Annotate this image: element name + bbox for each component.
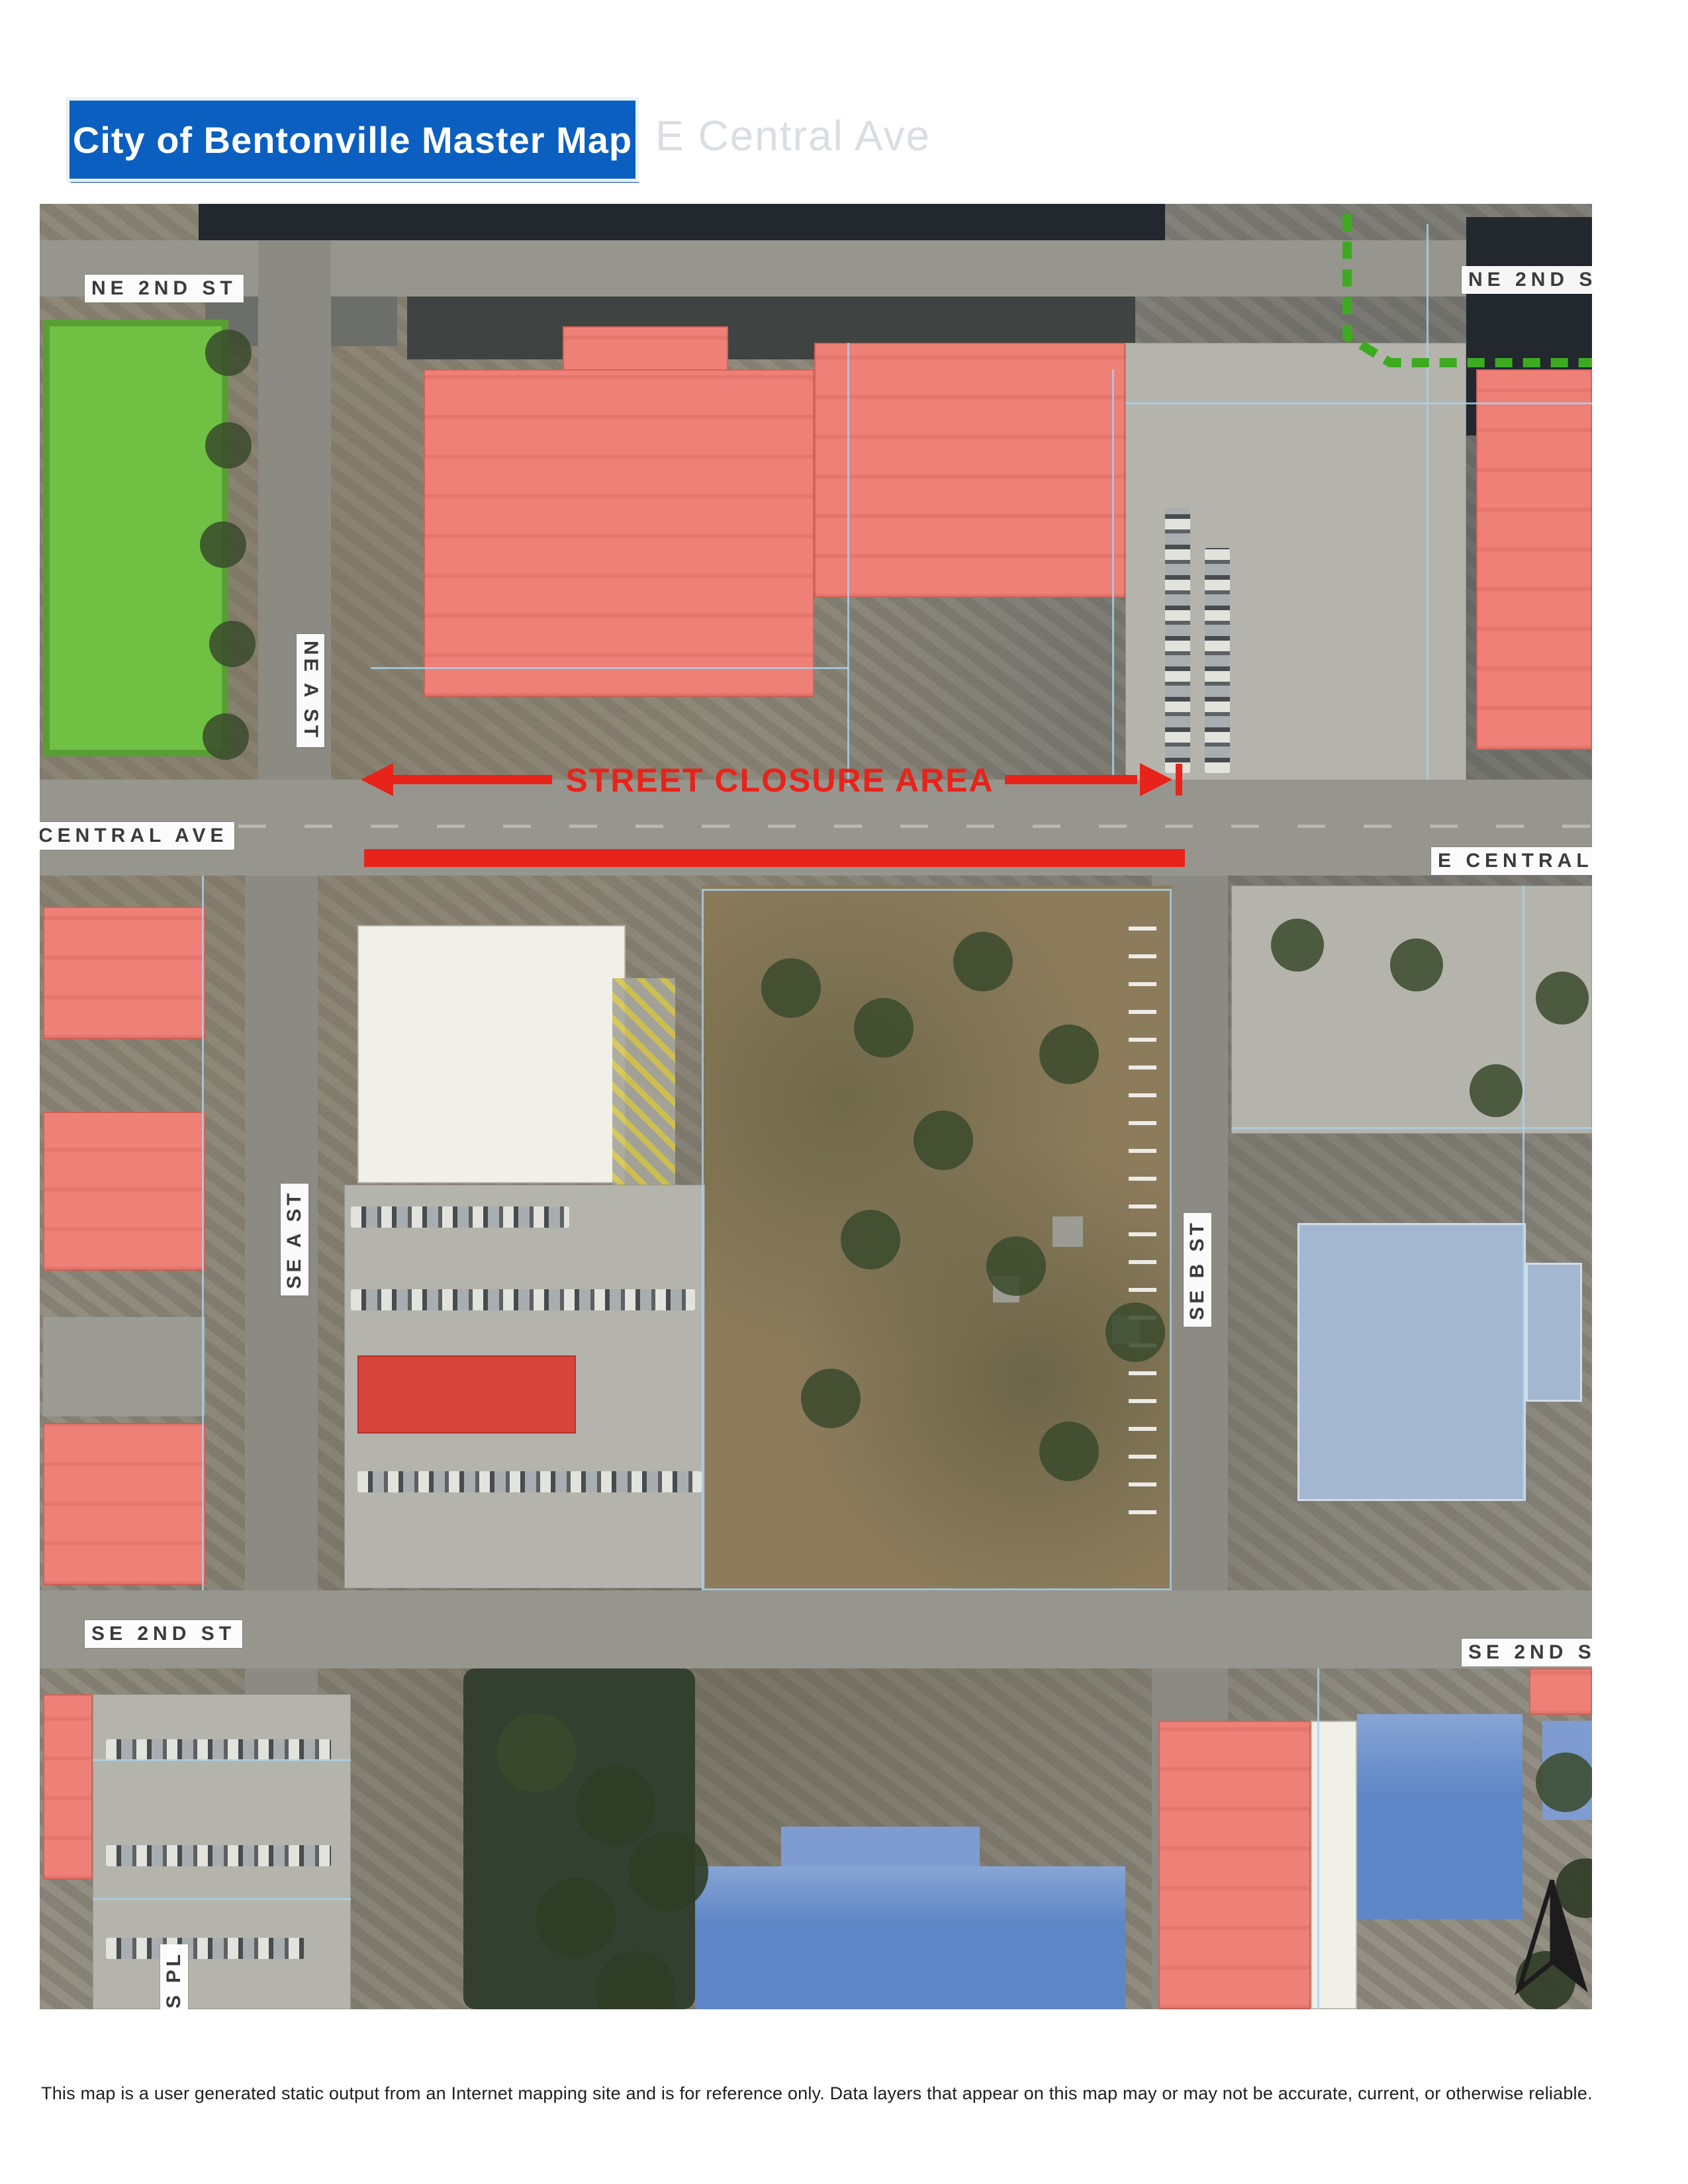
north-arrow-icon	[1519, 1880, 1585, 1989]
street-label-se-b-st: SE B ST	[1184, 1213, 1211, 1327]
street-label-se-2nd-st-right: SE 2ND ST	[1462, 1639, 1592, 1666]
street-closure-bar	[364, 849, 1185, 867]
page: City of Bentonville Master Map E Central…	[0, 0, 1688, 2184]
street-label-se-2nd-st-left: SE 2ND ST	[85, 1620, 242, 1648]
street-label-central-ave-left: CENTRAL AVE	[40, 822, 234, 850]
aerial-map-image: STREET CLOSURE AREA NE 2ND ST NE 2ND ST …	[40, 204, 1592, 2009]
map-overlay-graphics	[40, 204, 1592, 2009]
street-label-ne-2nd-st-left: NE 2ND ST	[85, 275, 244, 302]
street-label-ores-pl: ORES PL	[160, 1944, 188, 2009]
street-label-ne-2nd-st-right: NE 2ND ST	[1462, 266, 1592, 294]
disclaimer-text: This map is a user generated static outp…	[41, 2083, 1656, 2104]
street-label-ne-a-st: NE A ST	[297, 634, 324, 747]
ghost-street-text: E Central Ave	[655, 111, 931, 160]
map-title: City of Bentonville Master Map	[73, 118, 632, 161]
street-closure-label: STREET CLOSURE AREA	[555, 761, 1005, 799]
street-label-e-central-a-right: E CENTRAL A	[1431, 847, 1592, 875]
street-label-se-a-st: SE A ST	[281, 1183, 308, 1295]
map-title-banner: City of Bentonville Master Map	[70, 101, 635, 179]
